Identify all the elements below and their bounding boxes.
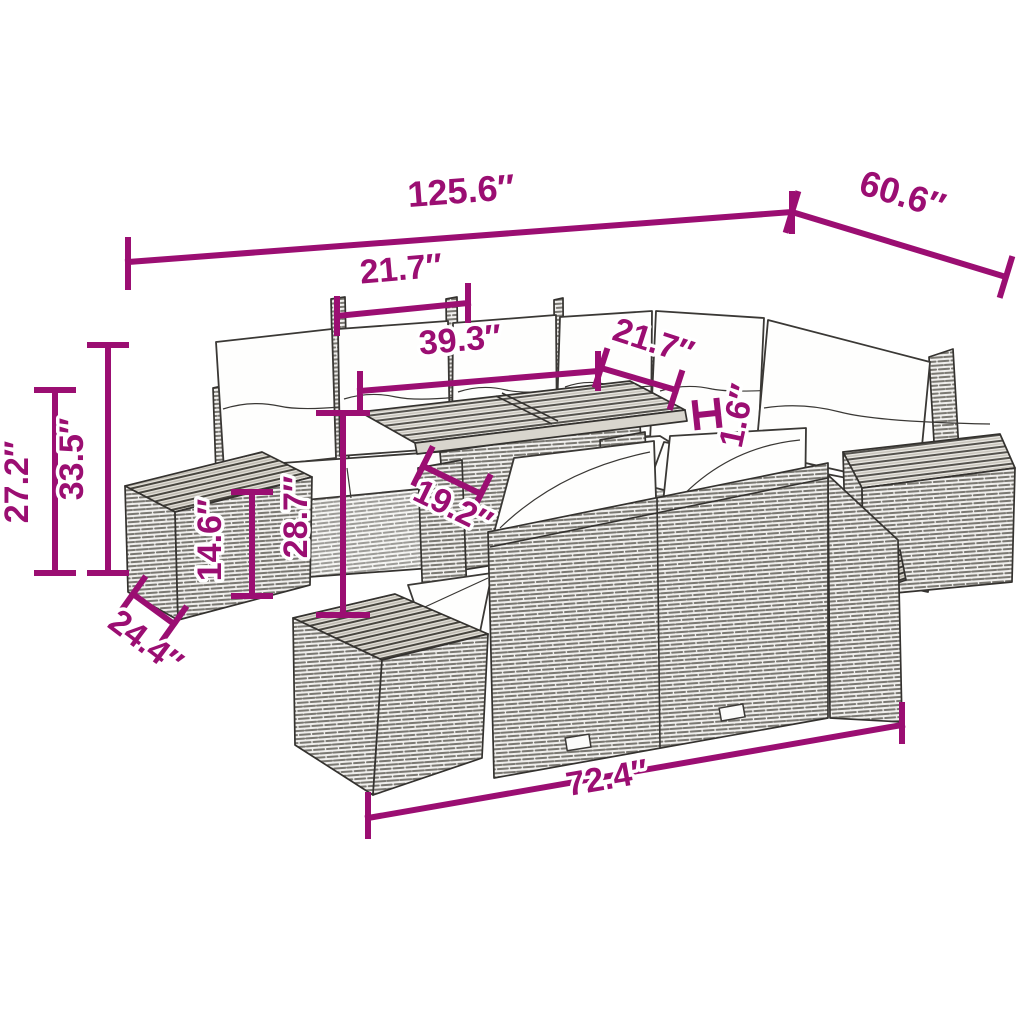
- dimension-label-side-table-height: 14.6″: [191, 499, 229, 581]
- dimension-label-table-length: 39.3″: [417, 318, 502, 363]
- front-left-table: [293, 594, 488, 795]
- dimension-height-inner-left: 33.5″: [53, 345, 126, 573]
- dimension-label-overall-width: 125.6″: [406, 166, 516, 215]
- dimension-label-overall-depth: 60.6″: [855, 162, 950, 227]
- illustration-canvas: 125.6″ 60.6″ 21.7″ 39.3″ 21.7″ 1.6″ 27.2…: [0, 0, 1024, 1024]
- dimension-overall-depth: 60.6″: [787, 162, 1012, 295]
- dimension-label-back-module-width: 21.7″: [358, 247, 443, 292]
- dimension-overall-width: 125.6″: [128, 166, 792, 287]
- dimension-label-height-inner-left: 33.5″: [53, 418, 91, 500]
- product-dimension-diagram: 125.6″ 60.6″ 21.7″ 39.3″ 21.7″ 1.6″ 27.2…: [0, 0, 1024, 1024]
- back-cushion: [216, 329, 336, 470]
- dimension-label-height-outer-left: 27.2″: [0, 441, 36, 523]
- dimension-label-bench-height: 28.7″: [277, 476, 315, 558]
